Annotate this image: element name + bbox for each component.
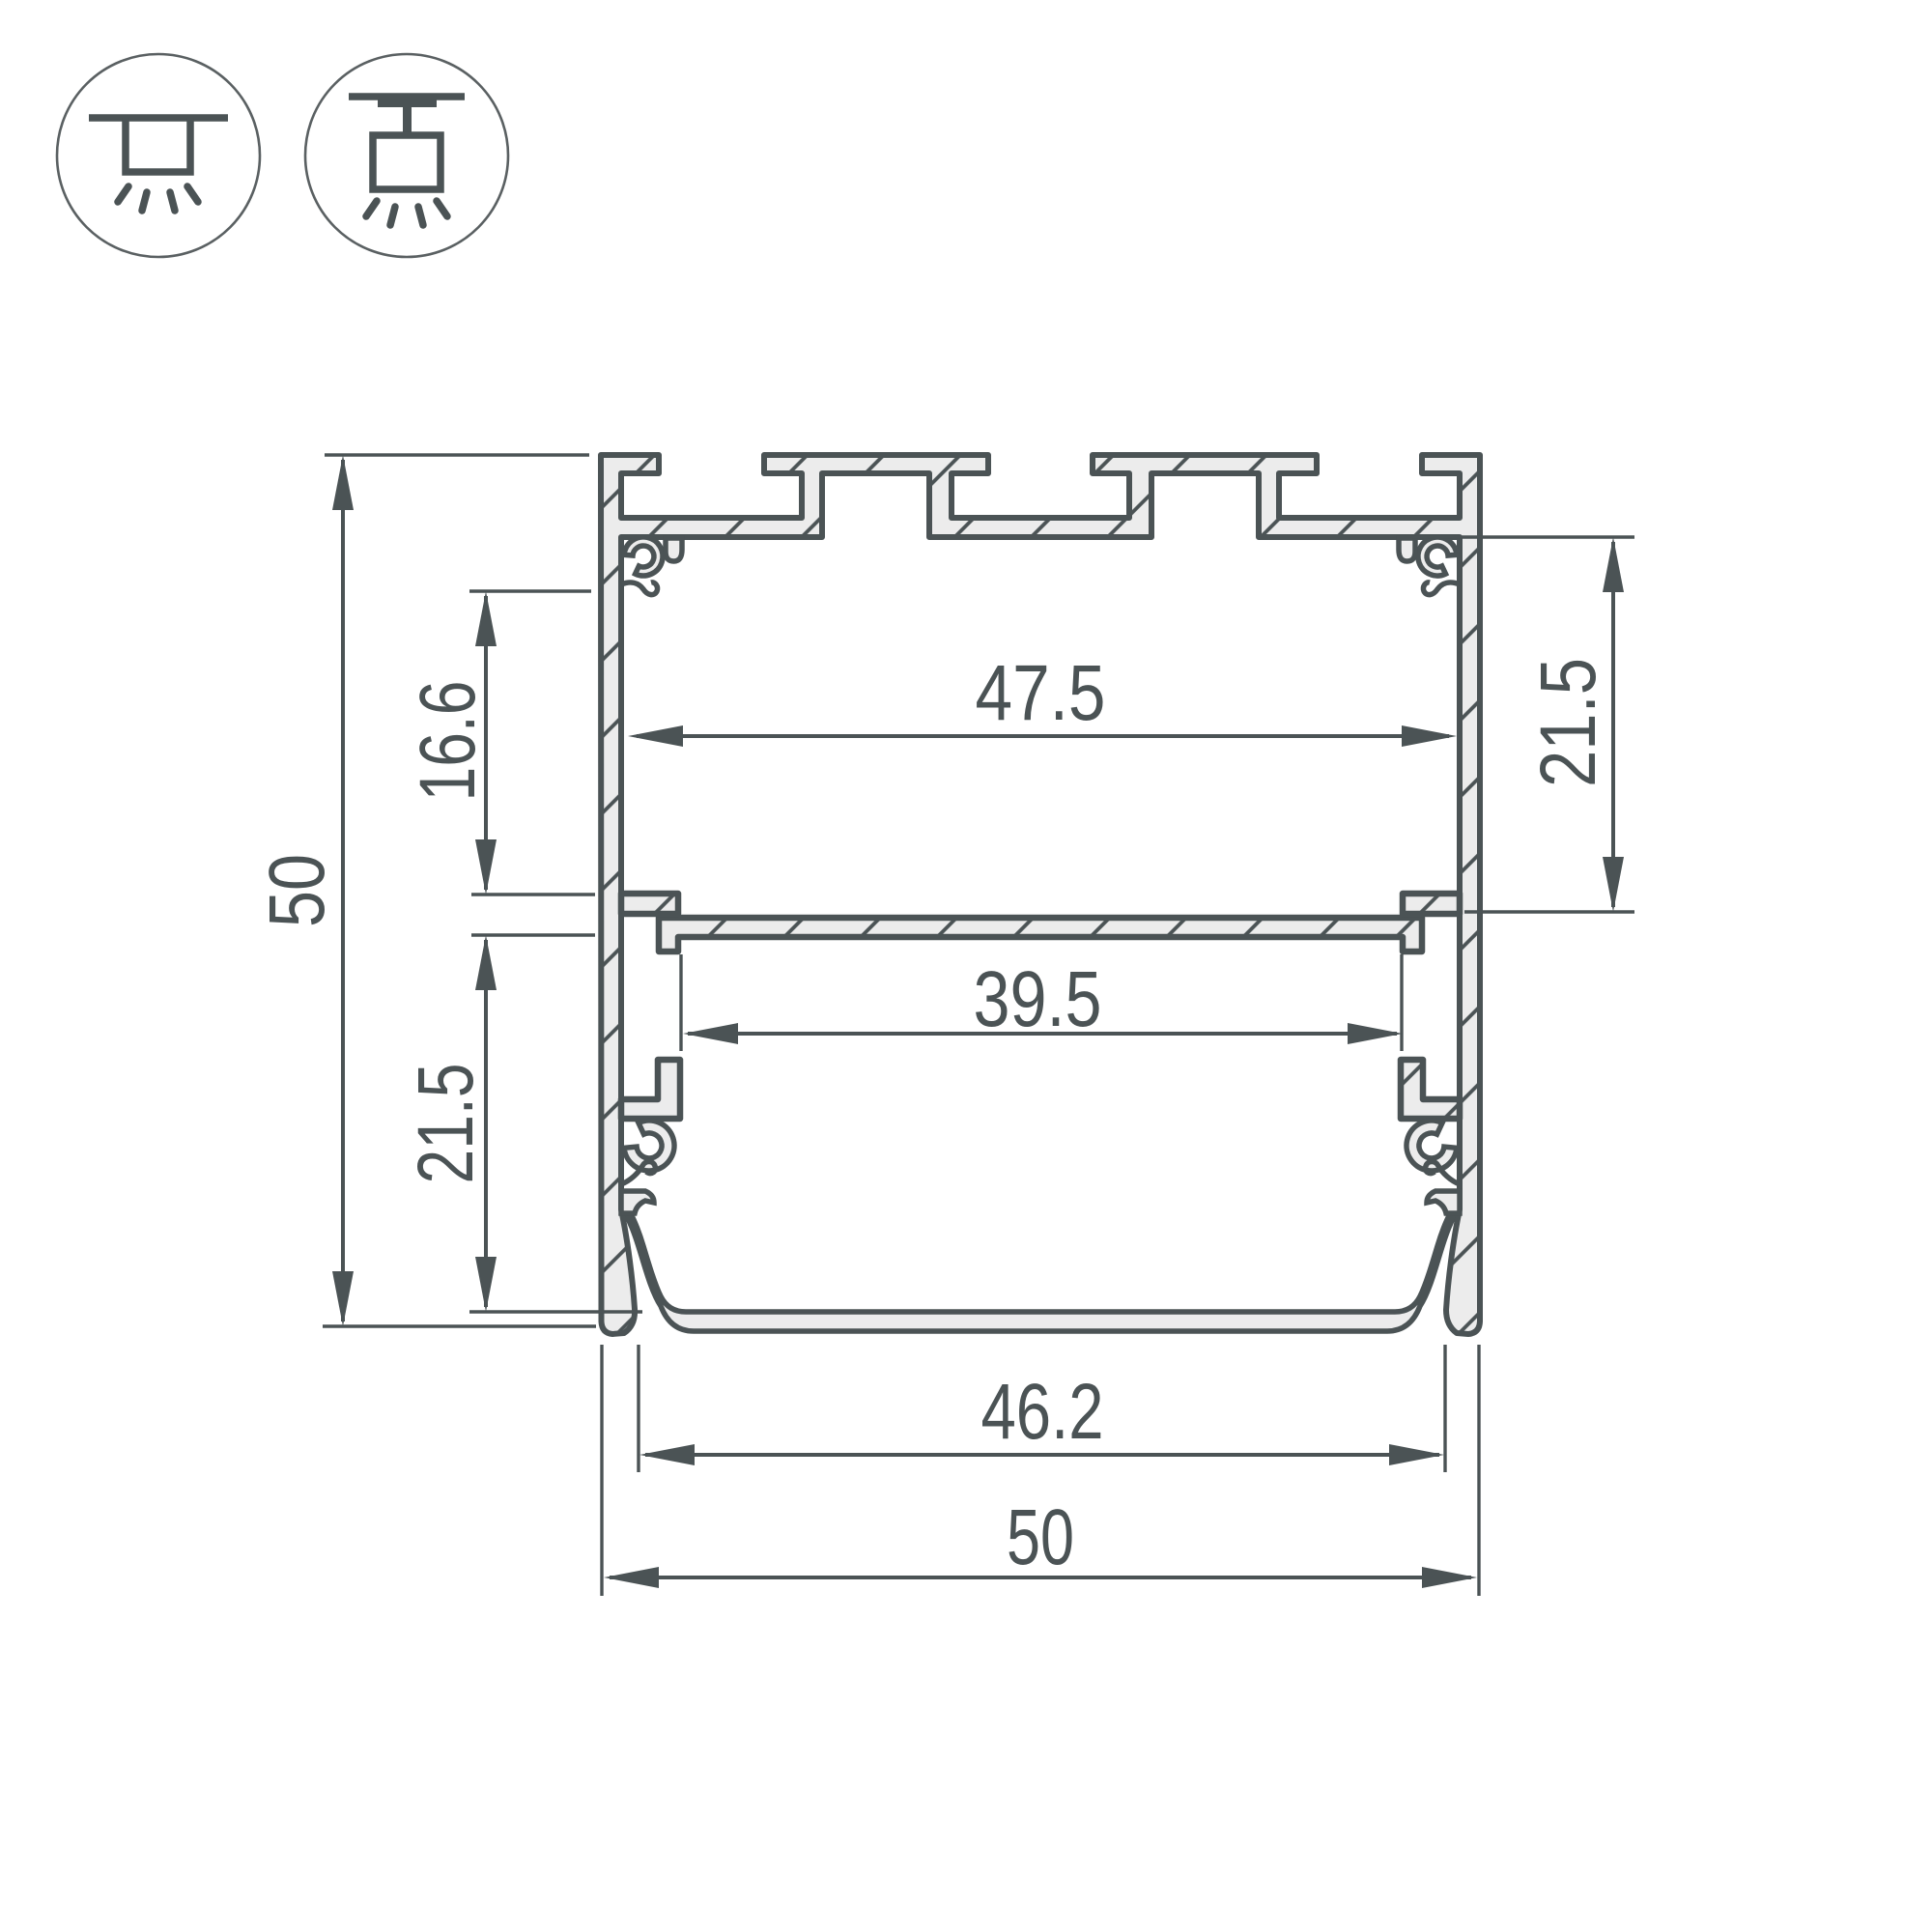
- svg-text:16.6: 16.6: [404, 681, 492, 802]
- svg-text:50: 50: [253, 854, 341, 927]
- svg-text:47.5: 47.5: [976, 649, 1106, 737]
- svg-text:50: 50: [1007, 1493, 1074, 1581]
- svg-text:46.2: 46.2: [981, 1368, 1104, 1456]
- svg-text:21.5: 21.5: [1524, 658, 1612, 787]
- svg-text:21.5: 21.5: [402, 1064, 490, 1184]
- svg-text:39.5: 39.5: [974, 955, 1102, 1043]
